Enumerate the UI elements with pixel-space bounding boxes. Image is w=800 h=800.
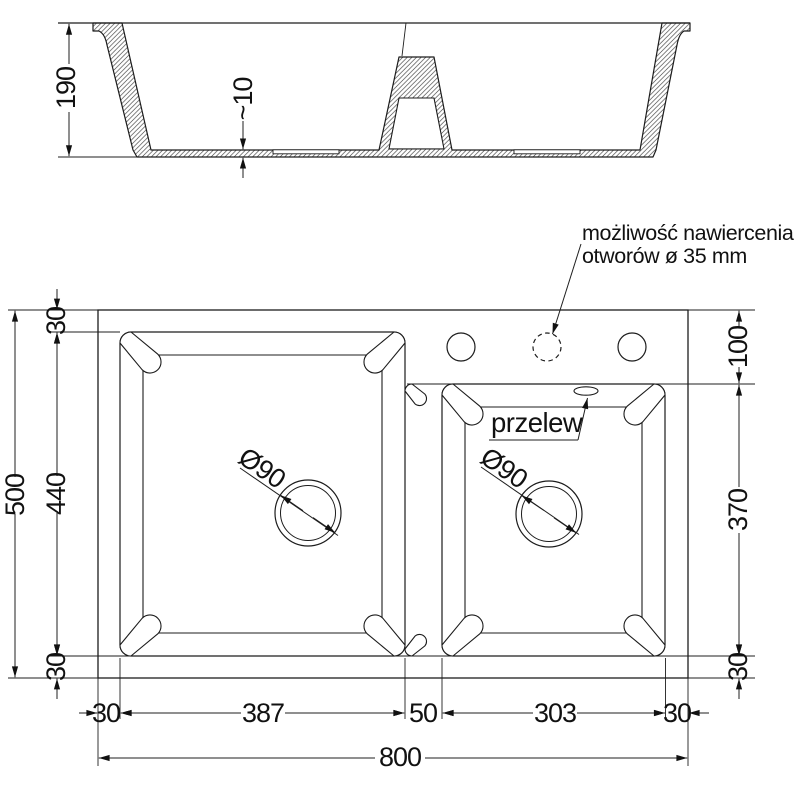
overflow-label: przelew — [491, 407, 583, 438]
dim-left-bowl-height-label: 440 — [41, 473, 71, 515]
dim-bottom-left-margin-label: 30 — [92, 698, 120, 728]
dim-overall-width-label: 800 — [379, 742, 421, 772]
dim-left-top-margin-label: 30 — [41, 307, 71, 335]
dim-bottom-right-margin-label: 30 — [663, 698, 691, 728]
divider-hollow — [389, 98, 444, 149]
dim-divider-width-label: 50 — [409, 698, 437, 728]
dim-right-bowl-height-label: 370 — [723, 489, 753, 531]
dim-left-bowl-width-label: 387 — [242, 698, 284, 728]
drilling-note-line2: otworów ø 35 mm — [582, 244, 747, 268]
overflow-opening — [574, 387, 598, 395]
drawing-canvas: 190 ~10 — [0, 0, 800, 800]
dim-right-bottom-margin-label: 30 — [723, 653, 753, 681]
dim-right-deck-height-label: 100 — [723, 326, 753, 368]
sink-technical-drawing: 190 ~10 — [0, 0, 800, 800]
dim-left-bottom-margin-label: 30 — [41, 653, 71, 681]
left-drain-recess — [273, 150, 339, 154]
right-drain-recess — [514, 150, 580, 154]
dim-floor-thickness-label: ~10 — [228, 78, 258, 121]
dim-depth-label: 190 — [51, 67, 81, 109]
dim-overall-height-label: 500 — [0, 474, 30, 516]
drilling-note-line1: możliwość nawiercenia — [582, 221, 794, 245]
dim-right-bowl-width-label: 303 — [534, 698, 576, 728]
